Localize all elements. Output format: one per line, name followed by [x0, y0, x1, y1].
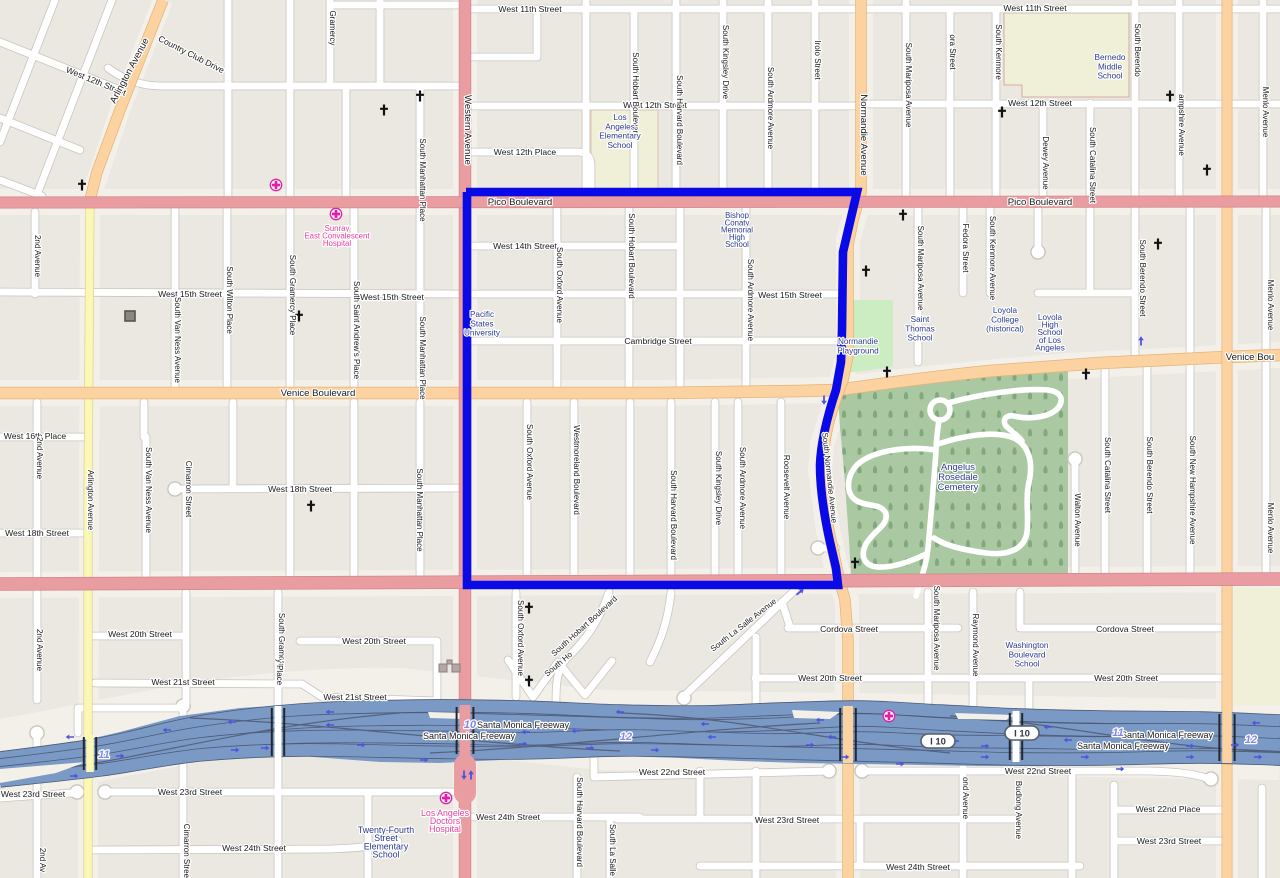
svg-text:South Kingsley Drive: South Kingsley Drive: [714, 451, 723, 526]
svg-text:South Oxford Avenue: South Oxford Avenue: [525, 424, 534, 500]
svg-text:South Mariposa Avenue: South Mariposa Avenue: [932, 586, 941, 671]
svg-text:Roosevelt Avenue: Roosevelt Avenue: [782, 455, 791, 520]
svg-text:Hospital: Hospital: [429, 824, 461, 834]
svg-text:ond Avenue: ond Avenue: [961, 777, 970, 820]
svg-text:South Catalina Street: South Catalina Street: [1103, 437, 1112, 514]
svg-text:South Saint Andrew's Place: South Saint Andrew's Place: [352, 281, 361, 380]
svg-text:10: 10: [464, 719, 477, 731]
svg-text:Budlong Avenue: Budlong Avenue: [1014, 781, 1023, 840]
svg-text:Menlo Avenue: Menlo Avenue: [1266, 280, 1275, 331]
svg-text:11: 11: [1112, 727, 1123, 739]
svg-text:South New Hampshire Avenue: South New Hampshire Avenue: [1188, 436, 1197, 545]
svg-text:South Wilton Place: South Wilton Place: [225, 266, 234, 334]
svg-text:Normandie: Normandie: [838, 337, 878, 346]
svg-text:Santa Monica Freeway: Santa Monica Freeway: [423, 731, 516, 741]
svg-text:Boulevard: Boulevard: [1009, 650, 1046, 659]
svg-text:Washington: Washington: [1006, 641, 1049, 650]
svg-text:South La Salle: South La Salle: [608, 824, 617, 877]
svg-text:Hospital: Hospital: [323, 239, 351, 248]
svg-text:South Harvard Boulevard: South Harvard Boulevard: [675, 75, 684, 165]
svg-text:South Hobart Boulevard: South Hobart Boulevard: [627, 213, 636, 298]
svg-text:West 21st Street: West 21st Street: [151, 677, 215, 687]
svg-text:West 24th Street: West 24th Street: [886, 862, 950, 872]
svg-text:Saint: Saint: [911, 315, 930, 324]
svg-text:South Berendo Street: South Berendo Street: [1145, 437, 1154, 515]
svg-text:Loyola: Loyola: [993, 306, 1018, 315]
svg-text:South Mariposa Avenue: South Mariposa Avenue: [904, 43, 913, 128]
svg-text:South Mariposa Avenue: South Mariposa Avenue: [916, 226, 925, 311]
svg-text:West 15th Street: West 15th Street: [360, 292, 424, 302]
svg-text:School: School: [1097, 72, 1122, 81]
svg-text:Venice Bou: Venice Bou: [1226, 352, 1275, 363]
svg-text:Venice Boulevard: Venice Boulevard: [281, 388, 356, 399]
svg-text:Cimarron Street: Cimarron Street: [182, 824, 191, 878]
svg-text:11: 11: [98, 749, 109, 761]
svg-text:School: School: [725, 240, 749, 249]
svg-text:School: School: [607, 141, 632, 150]
svg-text:West 12th Place: West 12th Place: [494, 147, 557, 157]
svg-text:West 12th Street: West 12th Street: [1008, 98, 1072, 108]
svg-text:South Kenmore: South Kenmore: [994, 24, 1003, 80]
svg-text:West 18th Street: West 18th Street: [268, 484, 332, 494]
svg-text:South Manhattan Place: South Manhattan Place: [418, 316, 427, 400]
svg-text:West 20th Street: West 20th Street: [1094, 673, 1158, 683]
svg-text:South Catalina Street: South Catalina Street: [1088, 127, 1097, 204]
svg-text:Bernedo: Bernedo: [1095, 53, 1126, 62]
svg-text:Angeles: Angeles: [605, 122, 635, 131]
svg-text:West 22nd Street: West 22nd Street: [639, 767, 706, 777]
svg-text:ampshire Avenue: ampshire Avenue: [1177, 94, 1186, 156]
svg-text:West 21st Street: West 21st Street: [323, 692, 387, 702]
svg-text:College: College: [991, 315, 1019, 324]
svg-text:South Oxford Avenue: South Oxford Avenue: [516, 600, 525, 676]
svg-text:South Van Ness Avenue: South Van Ness Avenue: [144, 447, 153, 534]
svg-text:School: School: [907, 334, 932, 343]
svg-text:South Ardmore Avenue: South Ardmore Avenue: [738, 447, 747, 530]
svg-text:Cordova Street: Cordova Street: [820, 624, 878, 634]
svg-text:Pico Boulevard: Pico Boulevard: [1008, 197, 1073, 208]
svg-text:South Harvard Boulevard: South Harvard Boulevard: [669, 470, 678, 560]
svg-text:Playground: Playground: [837, 346, 879, 355]
svg-text:West 24th Street: West 24th Street: [222, 843, 286, 853]
svg-text:12: 12: [1245, 734, 1257, 746]
svg-text:West 22nd Street: West 22nd Street: [1005, 766, 1072, 776]
svg-text:Fedora Street: Fedora Street: [961, 224, 970, 274]
svg-text:Westmoreland Boulevard: Westmoreland Boulevard: [572, 425, 581, 515]
svg-text:Arlington Avenue: Arlington Avenue: [86, 470, 95, 531]
svg-text:West 11th Street: West 11th Street: [498, 4, 562, 14]
svg-text:West 23rd Street: West 23rd Street: [1, 789, 66, 799]
svg-text:West 23rd Street: West 23rd Street: [755, 815, 820, 825]
svg-text:States: States: [470, 319, 493, 328]
svg-text:Middle: Middle: [1098, 62, 1123, 71]
svg-text:Irolo Street: Irolo Street: [813, 40, 822, 80]
svg-text:Menlo Avenue: Menlo Avenue: [1266, 503, 1275, 554]
svg-text:Los: Los: [613, 113, 626, 122]
svg-text:Santa Monica Freeway: Santa Monica Freeway: [1121, 730, 1214, 740]
svg-text:Santa Monica Freeway: Santa Monica Freeway: [1077, 741, 1170, 751]
svg-text:West 20th Street: West 20th Street: [108, 629, 172, 639]
svg-text:West 22nd Place: West 22nd Place: [1136, 804, 1201, 814]
svg-text:Pacific: Pacific: [470, 310, 494, 319]
svg-text:Normandie Avenue: Normandie Avenue: [858, 94, 869, 175]
svg-text:South Van Ness Avenue: South Van Ness Avenue: [173, 297, 182, 384]
svg-text:South Berendo: South Berendo: [1133, 23, 1142, 77]
svg-text:West 14th Street: West 14th Street: [493, 241, 557, 251]
svg-text:2nd Avenue: 2nd Avenue: [35, 629, 44, 672]
svg-text:Pico Boulevard: Pico Boulevard: [488, 197, 553, 208]
svg-text:South Oxford Avenue: South Oxford Avenue: [555, 247, 564, 323]
svg-text:Cemetery: Cemetery: [938, 481, 979, 492]
svg-text:2nd Avenue: 2nd Avenue: [35, 437, 44, 480]
svg-text:West 11th Street: West 11th Street: [1003, 3, 1067, 13]
svg-text:South Ardmore Avenue: South Ardmore Avenue: [746, 259, 755, 342]
svg-text:School: School: [1014, 660, 1039, 669]
svg-text:South Kingsley Drive: South Kingsley Drive: [721, 25, 730, 100]
svg-text:West 20th Street: West 20th Street: [798, 673, 862, 683]
svg-text:Walton Avenue: Walton Avenue: [1073, 493, 1082, 547]
svg-text:12: 12: [620, 731, 632, 743]
svg-text:Gramercy: Gramercy: [328, 10, 337, 45]
svg-text:Santa Monica Freeway: Santa Monica Freeway: [477, 720, 570, 730]
svg-text:South Manhattan Place: South Manhattan Place: [418, 138, 427, 222]
svg-text:West 20th Street: West 20th Street: [342, 636, 406, 646]
svg-text:West 23rd Street: West 23rd Street: [1137, 836, 1202, 846]
svg-text:West 15th Street: West 15th Street: [758, 290, 822, 300]
svg-text:Elementary: Elementary: [599, 132, 641, 141]
svg-text:Thomas: Thomas: [905, 324, 935, 333]
svg-text:West 24th Street: West 24th Street: [476, 812, 540, 822]
svg-text:South Kenmore Avenue: South Kenmore Avenue: [988, 216, 997, 301]
svg-text:South Ardmore Avenue: South Ardmore Avenue: [766, 67, 775, 150]
svg-text:ora Street: ora Street: [948, 34, 957, 70]
svg-text:South Manhattan Place: South Manhattan Place: [415, 468, 424, 552]
svg-text:2nd Avenue: 2nd Avenue: [33, 235, 42, 278]
svg-text:West 15th Street: West 15th Street: [158, 289, 222, 299]
svg-text:Cordova Street: Cordova Street: [1096, 624, 1154, 634]
svg-text:Menlo Avenue: Menlo Avenue: [1261, 87, 1270, 138]
svg-text:Dewey Avenue: Dewey Avenue: [1041, 136, 1050, 190]
svg-text:I 10: I 10: [930, 736, 946, 747]
svg-text:West 18th Street: West 18th Street: [5, 528, 69, 538]
svg-text:School: School: [373, 850, 400, 860]
svg-text:Raymond Avenue: Raymond Avenue: [971, 613, 980, 677]
svg-text:(historical): (historical): [986, 325, 1024, 334]
svg-text:Angeles: Angeles: [1035, 343, 1065, 352]
svg-text:Western Avenue: Western Avenue: [462, 95, 473, 165]
svg-text:y Place: y Place: [275, 659, 284, 686]
svg-text:2nd Av: 2nd Av: [38, 848, 47, 872]
svg-text:South Harvard Boulevard: South Harvard Boulevard: [575, 777, 584, 867]
svg-text:West 23rd Street: West 23rd Street: [158, 787, 223, 797]
svg-text:I 10: I 10: [1014, 728, 1030, 739]
svg-text:South Berendo Street: South Berendo Street: [1138, 240, 1147, 318]
svg-text:Cimarron Street: Cimarron Street: [184, 461, 193, 518]
svg-text:South Gramercy Place: South Gramercy Place: [288, 255, 297, 336]
svg-text:University: University: [464, 329, 501, 338]
svg-text:Cambridge Street: Cambridge Street: [624, 336, 692, 346]
